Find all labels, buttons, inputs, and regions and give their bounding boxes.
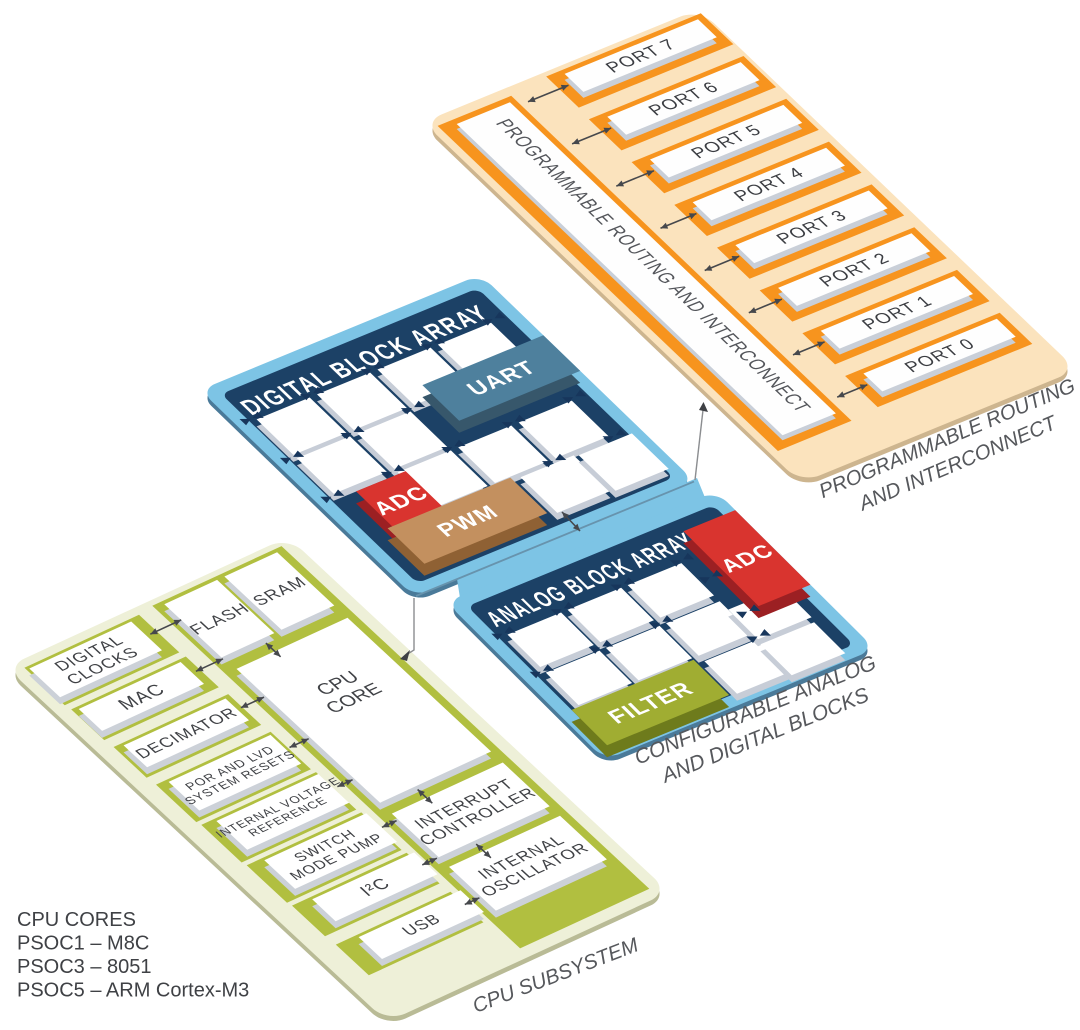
svg-text:CPU CORES: CPU CORES — [17, 909, 136, 931]
svg-text:PSOC5 – ARM Cortex-M3: PSOC5 – ARM Cortex-M3 — [17, 980, 249, 1002]
svg-text:PSOC3 – 8051: PSOC3 – 8051 — [17, 956, 152, 978]
svg-text:PSOC1 – M8C: PSOC1 – M8C — [17, 933, 149, 955]
